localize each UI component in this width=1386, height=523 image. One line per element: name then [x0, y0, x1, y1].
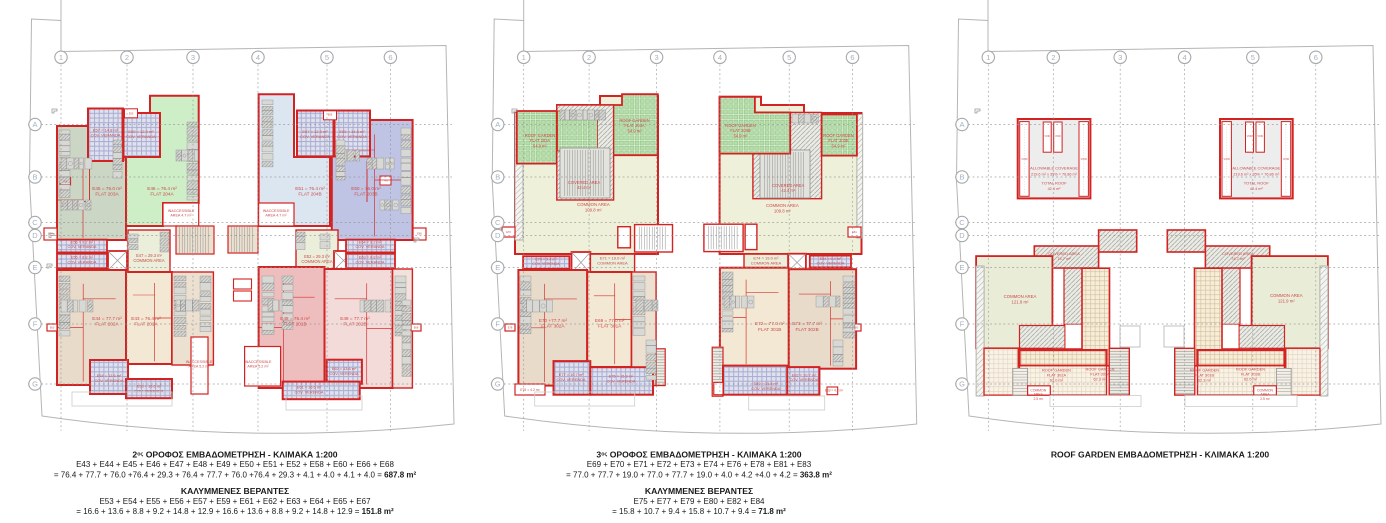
svg-text:B: B — [32, 173, 37, 182]
svg-text:FLAT 301B: FLAT 301B — [758, 327, 781, 332]
svg-text:VOID: VOID — [1247, 136, 1253, 138]
svg-text:COV. VERANDA: COV. VERANDA — [67, 244, 96, 249]
svg-text:AREA 5.2 m²: AREA 5.2 m² — [188, 364, 210, 368]
svg-text:COMMON AREA: COMMON AREA — [597, 261, 628, 266]
svg-text:6: 6 — [850, 53, 854, 62]
svg-text:121.9 m²: 121.9 m² — [1278, 298, 1296, 303]
svg-text:G: G — [32, 380, 38, 389]
svg-text:COV. VERENDA: COV. VERENDA — [817, 262, 845, 266]
svg-text:E68: E68 — [414, 326, 419, 330]
svg-text:E84 = 9.4 m²: E84 = 9.4 m² — [820, 257, 842, 261]
svg-text:5: 5 — [325, 53, 329, 62]
svg-text:6: 6 — [388, 53, 392, 62]
svg-text:E69 + E70 + E71 + E72 + E73 +: E69 + E70 + E71 + E72 + E73 + E74 + E76 … — [587, 460, 812, 469]
svg-text:E65: E65 — [328, 113, 333, 117]
svg-text:62.3 m²: 62.3 m² — [1198, 377, 1212, 382]
svg-text:62.0 m²: 62.0 m² — [1050, 377, 1064, 382]
svg-text:62.0 m²: 62.0 m² — [1244, 376, 1258, 381]
svg-text:74.7 m²: 74.7 m² — [1057, 256, 1071, 261]
svg-text:E50 = 76.0 m²: E50 = 76.0 m² — [351, 186, 381, 191]
svg-text:COV. VERANDA: COV. VERANDA — [67, 259, 96, 264]
svg-text:ROOF GARDEN ΕΜΒΑΔΟΜΕΤΡΗΣΗ - ΚΛ: ROOF GARDEN ΕΜΒΑΔΟΜΕΤΡΗΣΗ - ΚΛΙΜΑΚΑ 1:20… — [1051, 450, 1270, 460]
svg-text:FLAT 201B: FLAT 201B — [283, 322, 306, 327]
svg-text:2: 2 — [125, 53, 129, 62]
svg-text:FLAT 203A: FLAT 203A — [95, 192, 119, 197]
svg-text:COV. VERENDA: COV. VERENDA — [532, 262, 560, 266]
svg-text:TOTAL ROOF: TOTAL ROOF — [1041, 181, 1067, 186]
svg-text:E: E — [32, 263, 37, 272]
svg-text:TOTAL ROOF: TOTAL ROOF — [1244, 181, 1270, 186]
svg-text:E44 = 77.7 m²: E44 = 77.7 m² — [92, 316, 122, 321]
svg-text:1: 1 — [59, 53, 63, 62]
svg-text:VOID: VOID — [1055, 136, 1061, 138]
svg-text:E49 = 77.7 m²: E49 = 77.7 m² — [340, 316, 370, 321]
svg-text:E: E — [959, 263, 964, 272]
svg-text:COMMON AREA: COMMON AREA — [577, 202, 610, 207]
svg-text:2ος ΟΡΟΦΟΣ ΕΜΒΑΔΟΜΕΤΡΗΣΗ - ΚΛΙ: 2ος ΟΡΟΦΟΣ ΕΜΒΑΔΟΜΕΤΡΗΣΗ - ΚΛΙΜΑΚΑ 1:200 — [132, 450, 337, 460]
svg-text:COMMON AREA: COMMON AREA — [301, 259, 332, 264]
svg-text:= 77.0 + 77.7 + 19.0 + 77.0 +: = 77.0 + 77.7 + 19.0 + 77.0 + 77.7 + 19.… — [566, 470, 832, 479]
svg-text:D: D — [959, 231, 965, 240]
svg-text:COMMON AREA: COMMON AREA — [1270, 293, 1303, 298]
svg-text:FLAT 204B: FLAT 204B — [298, 192, 321, 197]
svg-text:ALLOWABLE COVERAGE: ALLOWABLE COVERAGE — [1232, 166, 1280, 171]
svg-text:INACCESSIBLE: INACCESSIBLE — [168, 209, 195, 213]
svg-text:E48 = 76.4 m²: E48 = 76.4 m² — [280, 316, 310, 321]
svg-text:F: F — [960, 320, 965, 329]
svg-text:B: B — [959, 173, 964, 182]
svg-text:E51 = 76.4 m²: E51 = 76.4 m² — [295, 186, 325, 191]
svg-text:E43 + E44 + E45 + E46 + E47 +: E43 + E44 + E45 + E46 + E47 + E48 + E49 … — [76, 460, 394, 469]
svg-text:G: G — [495, 380, 501, 389]
svg-text:D: D — [495, 231, 501, 240]
svg-text:F: F — [495, 320, 500, 329]
svg-text:5: 5 — [787, 53, 791, 62]
svg-text:6: 6 — [1314, 53, 1318, 62]
svg-text:4.1: 4.1 — [63, 179, 67, 183]
svg-text:VOID: VOID — [1021, 157, 1027, 161]
svg-text:E83 = 4.2 m²: E83 = 4.2 m² — [825, 389, 843, 393]
svg-text:AREA 5.2 m²: AREA 5.2 m² — [247, 364, 269, 368]
svg-text:ALLOWABLE COVERAGE: ALLOWABLE COVERAGE — [1030, 166, 1078, 171]
svg-text:= 15.8 + 10.7 + 9.4 + 15.8 + 1: = 15.8 + 10.7 + 9.4 + 15.8 + 10.7 + 9.4 … — [612, 507, 786, 516]
svg-text:3: 3 — [1118, 53, 1122, 62]
svg-text:E75 + E77 + E79 + E80 + E82 +: E75 + E77 + E79 + E80 + E82 + E84 — [634, 497, 766, 506]
svg-text:E70 +77.7 m²: E70 +77.7 m² — [539, 318, 568, 323]
svg-text:219.6 m² x 35% = 76.86 m²: 219.6 m² x 35% = 76.86 m² — [1031, 173, 1078, 177]
svg-text:E46 = 76.4 m²: E46 = 76.4 m² — [147, 186, 177, 191]
svg-text:COMMON AREA: COMMON AREA — [766, 203, 799, 208]
svg-text:E60: E60 — [50, 326, 55, 330]
svg-text:COV. VERENDA: COV. VERENDA — [134, 388, 163, 393]
svg-text:62.3 m²: 62.3 m² — [1093, 376, 1107, 381]
svg-text:COV. VERANDA: COV. VERANDA — [355, 244, 384, 249]
svg-text:COMMON AREA: COMMON AREA — [1004, 294, 1037, 299]
svg-text:54.9 m²: 54.9 m² — [628, 128, 643, 133]
svg-text:COV. VERENDA: COV. VERENDA — [329, 371, 358, 376]
svg-text:4.0: 4.0 — [384, 179, 388, 183]
svg-text:E53 + E54 + E55 + E56 + E57 +: E53 + E54 + E55 + E56 + E57 + E59 + E61 … — [99, 497, 371, 506]
svg-text:42.4 m²: 42.4 m² — [1048, 187, 1062, 191]
svg-text:E81: E81 — [852, 230, 857, 234]
svg-text:INACCESSIBLE: INACCESSIBLE — [186, 360, 213, 364]
svg-text:2.5 m²: 2.5 m² — [1033, 397, 1043, 401]
svg-text:= 76.4 + 77.7 + 76.0 +76.4 + 2: = 76.4 + 77.7 + 76.0 +76.4 + 29.3 + 76.4… — [54, 470, 417, 479]
svg-text:E76 = 4.2 m²: E76 = 4.2 m² — [520, 388, 540, 392]
svg-text:2.5 m²: 2.5 m² — [1260, 397, 1270, 401]
svg-text:C: C — [495, 218, 501, 227]
svg-text:3: 3 — [655, 53, 659, 62]
svg-text:4: 4 — [256, 53, 260, 62]
svg-text:B: B — [495, 173, 500, 182]
svg-text:AREA 4.7 m²: AREA 4.7 m² — [170, 213, 192, 217]
svg-text:3ος ΟΡΟΦΟΣ ΕΜΒΑΔΟΜΕΤΡΗΣΗ - ΚΛΙ: 3ος ΟΡΟΦΟΣ ΕΜΒΑΔΟΜΕΤΡΗΣΗ - ΚΛΙΜΑΚΑ 1:200 — [596, 450, 801, 460]
svg-text:E59: E59 — [129, 112, 134, 116]
svg-text:42.4 m²: 42.4 m² — [1250, 187, 1264, 191]
svg-text:A: A — [32, 120, 37, 129]
svg-text:54.9 m²: 54.9 m² — [533, 143, 548, 148]
svg-text:COV. VERANDA: COV. VERANDA — [355, 259, 384, 264]
svg-text:VOID: VOID — [1081, 157, 1087, 161]
svg-text:42.4 m²: 42.4 m² — [577, 185, 592, 190]
svg-text:E45 = 76.0 m²: E45 = 76.0 m² — [92, 186, 122, 191]
svg-text:1: 1 — [522, 53, 526, 62]
svg-text:COV. VERENDA: COV. VERENDA — [751, 386, 780, 391]
svg-text:COV. VERANDA: COV. VERANDA — [126, 134, 156, 139]
svg-text:AREA 4.7 m²: AREA 4.7 m² — [265, 213, 287, 217]
svg-text:COV. VERENDA: COV. VERENDA — [294, 389, 323, 394]
svg-text:109.8 m²: 109.8 m² — [585, 207, 603, 212]
svg-text:E83: E83 — [854, 326, 859, 330]
svg-text:2: 2 — [587, 53, 591, 62]
svg-text:FLAT 203B: FLAT 203B — [354, 192, 377, 197]
svg-text:C: C — [959, 218, 965, 227]
svg-text:= 16.6 + 13.6 + 8.8 + 9.2 + 14: = 16.6 + 13.6 + 8.8 + 9.2 + 14.8 + 12.9 … — [76, 507, 394, 516]
svg-text:ΚΑΛΥΜΜΕΝΕΣ ΒΕΡΑΝΤΕΣ: ΚΑΛΥΜΜΕΝΕΣ ΒΕΡΑΝΤΕΣ — [645, 486, 753, 496]
svg-text:2: 2 — [1051, 53, 1055, 62]
svg-text:54.9 m²: 54.9 m² — [832, 143, 847, 148]
svg-text:42.4 m²: 42.4 m² — [781, 188, 796, 193]
svg-text:1: 1 — [986, 53, 990, 62]
svg-text:COMMON AREA: COMMON AREA — [751, 261, 782, 266]
svg-text:COV. VERANDA: COV. VERANDA — [337, 134, 367, 139]
svg-text:74.7 m²: 74.7 m² — [1231, 256, 1245, 261]
svg-text:54.9 m²: 54.9 m² — [734, 133, 749, 138]
svg-text:E: E — [495, 263, 500, 272]
svg-text:ΚΑΛΥΜΜΕΝΕΣ ΒΕΡΑΝΤΕΣ: ΚΑΛΥΜΜΕΝΕΣ ΒΕΡΑΝΤΕΣ — [181, 486, 289, 496]
svg-text:VOID: VOID — [1044, 136, 1050, 138]
svg-text:FLAT 204A: FLAT 204A — [150, 192, 174, 197]
svg-text:D: D — [32, 231, 38, 240]
svg-text:FLAT 302B: FLAT 302B — [795, 327, 818, 332]
svg-text:COV. VERENDA: COV. VERENDA — [556, 377, 585, 382]
svg-text:VOID: VOID — [1283, 157, 1289, 161]
svg-text:121.9 m²: 121.9 m² — [1012, 299, 1030, 304]
svg-text:E43 = 76.4 m²: E43 = 76.4 m² — [131, 316, 161, 321]
svg-text:F: F — [33, 320, 38, 329]
svg-text:COV. VERENDA: COV. VERENDA — [789, 377, 818, 382]
svg-text:COV. VERANDA: COV. VERANDA — [300, 134, 330, 139]
svg-text:219.6 m² x 35% = 76.86 m²: 219.6 m² x 35% = 76.86 m² — [1233, 173, 1280, 177]
svg-text:109.8 m²: 109.8 m² — [774, 208, 792, 213]
svg-text:E79 = 9.4 m²: E79 = 9.4 m² — [535, 258, 557, 262]
svg-text:E69 = 77.0 m²: E69 = 77.0 m² — [595, 318, 625, 323]
svg-text:5: 5 — [1251, 53, 1255, 62]
svg-text:COV. VERENDA: COV. VERENDA — [606, 378, 635, 383]
svg-text:COV. VERANDA: COV. VERANDA — [91, 133, 121, 138]
svg-text:E76: E76 — [506, 230, 511, 234]
svg-text:E66: E66 — [417, 232, 422, 236]
svg-text:A: A — [495, 120, 500, 129]
svg-text:COMMON AREA: COMMON AREA — [133, 258, 164, 263]
svg-text:C: C — [32, 218, 38, 227]
svg-text:VOID: VOID — [1257, 136, 1263, 138]
svg-text:3: 3 — [191, 53, 195, 62]
svg-text:INACCESSIBLE: INACCESSIBLE — [263, 209, 290, 213]
svg-text:A: A — [959, 120, 964, 129]
svg-text:COV. VERENDA: COV. VERENDA — [94, 378, 123, 383]
svg-text:4: 4 — [1183, 53, 1187, 62]
svg-text:G: G — [959, 380, 965, 389]
svg-text:VOID: VOID — [1224, 157, 1230, 161]
svg-text:E78: E78 — [508, 326, 513, 330]
svg-text:4: 4 — [718, 53, 722, 62]
svg-text:FLAT 201A: FLAT 201A — [134, 322, 158, 327]
